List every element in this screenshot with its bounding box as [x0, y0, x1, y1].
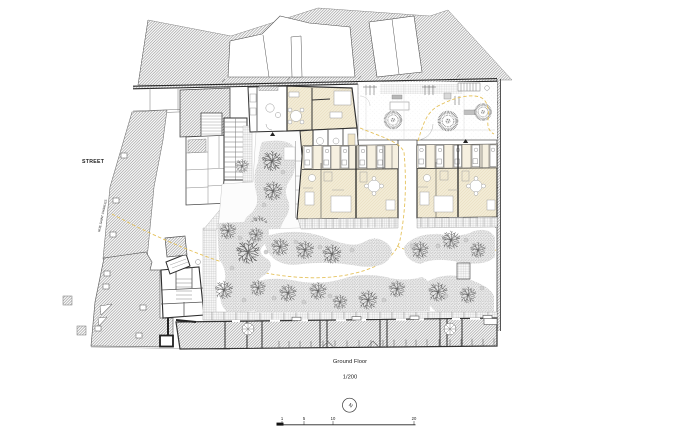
svg-text:STREET: STREET: [82, 159, 105, 165]
svg-text:1/200: 1/200: [343, 375, 358, 381]
svg-text:10: 10: [331, 416, 336, 421]
svg-text:20: 20: [412, 416, 417, 421]
svg-text:Ground Floor: Ground Floor: [333, 359, 367, 365]
